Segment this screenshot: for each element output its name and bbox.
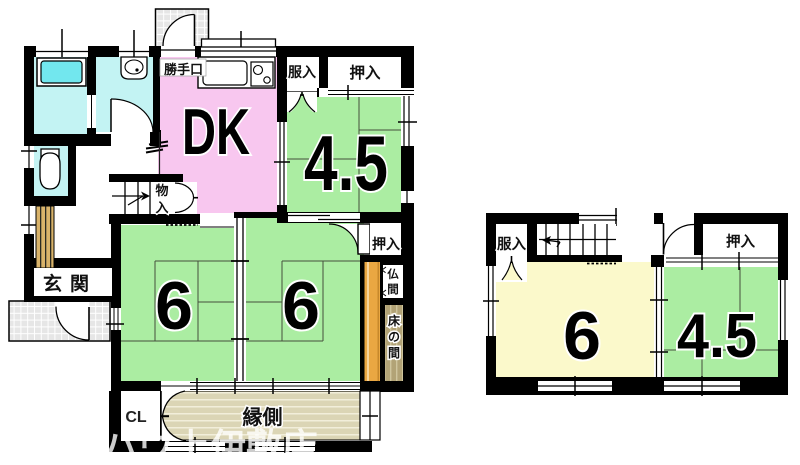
svg-text:仏: 仏 — [387, 268, 399, 281]
svg-text:6: 6 — [155, 268, 193, 344]
svg-text:服入: 服入 — [497, 236, 526, 253]
svg-text:間: 間 — [387, 283, 399, 296]
svg-text:6: 6 — [282, 268, 320, 344]
svg-text:6: 6 — [563, 298, 601, 374]
svg-text:物: 物 — [155, 183, 168, 198]
svg-text:ハウ上伊敷店: ハウ上伊敷店 — [102, 426, 318, 465]
svg-text:CL: CL — [125, 409, 147, 426]
svg-text:DK: DK — [182, 95, 250, 168]
svg-text:押入: 押入 — [726, 233, 755, 251]
svg-text:間: 間 — [388, 346, 400, 360]
svg-text:押入: 押入 — [372, 236, 400, 252]
svg-text:4.5: 4.5 — [677, 302, 757, 371]
svg-text:4.5: 4.5 — [304, 119, 388, 207]
svg-text:服入: 服入 — [288, 64, 316, 80]
svg-text:玄関: 玄関 — [43, 272, 97, 295]
svg-text:の: の — [388, 330, 400, 344]
svg-text:勝手口: 勝手口 — [164, 62, 203, 77]
svg-text:床: 床 — [388, 313, 401, 328]
svg-text:入: 入 — [155, 200, 168, 215]
svg-text:押入: 押入 — [349, 63, 381, 82]
